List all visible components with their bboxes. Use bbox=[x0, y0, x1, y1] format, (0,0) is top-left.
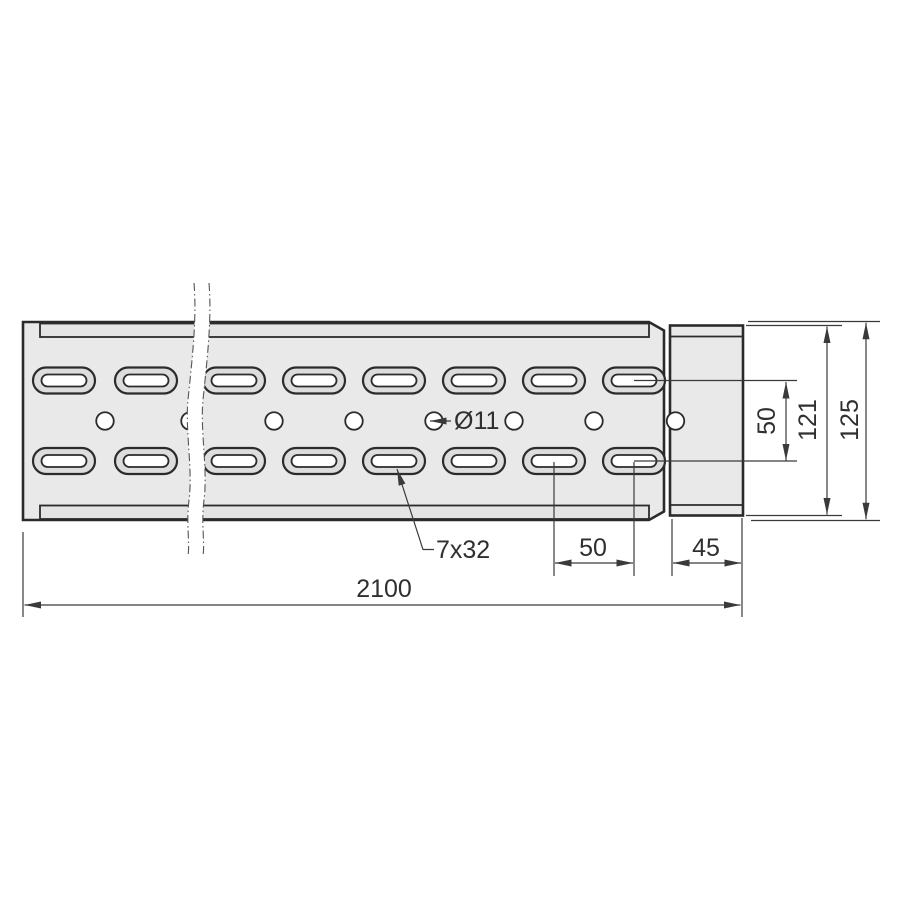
cable-tray-drawing: 50 121 125 50 45 2100 Ø11 7x32 bbox=[0, 0, 900, 900]
slot-hole bbox=[124, 375, 169, 387]
round-hole bbox=[345, 412, 363, 430]
slot-hole bbox=[452, 455, 497, 467]
dimension-total-length: 2100 bbox=[23, 532, 741, 617]
dim-label-inner-height: 121 bbox=[794, 399, 822, 441]
dim-label-outer-height: 125 bbox=[836, 399, 864, 441]
dim-label-total-length: 2100 bbox=[356, 575, 412, 603]
label-slot-size: 7x32 bbox=[436, 536, 490, 564]
round-hole bbox=[667, 412, 685, 430]
round-hole bbox=[265, 412, 283, 430]
top-flange-band bbox=[40, 324, 649, 338]
dimension-end-section-width: 45 bbox=[672, 518, 742, 617]
tray-body-outline bbox=[23, 322, 664, 520]
label-hole-diameter: Ø11 bbox=[454, 407, 499, 435]
slot-hole bbox=[124, 455, 169, 467]
round-hole bbox=[585, 412, 603, 430]
slot-hole bbox=[42, 455, 87, 467]
slot-hole bbox=[372, 455, 417, 467]
slot-hole bbox=[212, 375, 257, 387]
round-hole bbox=[505, 412, 523, 430]
slot-hole bbox=[372, 375, 417, 387]
dim-label-end-section-width: 45 bbox=[692, 534, 720, 562]
technical-drawing-canvas: 50 121 125 50 45 2100 Ø11 7x32 bbox=[0, 0, 900, 900]
round-hole bbox=[96, 412, 114, 430]
tray-body bbox=[23, 322, 664, 520]
slot-hole bbox=[292, 375, 337, 387]
dim-label-slot-pitch: 50 bbox=[579, 534, 607, 562]
slot-hole bbox=[532, 375, 577, 387]
slot-hole bbox=[292, 455, 337, 467]
bottom-flange-band bbox=[40, 506, 649, 520]
slot-hole bbox=[42, 375, 87, 387]
dim-label-slot-rows-distance: 50 bbox=[753, 407, 781, 435]
slot-hole bbox=[212, 455, 257, 467]
slot-hole bbox=[452, 375, 497, 387]
